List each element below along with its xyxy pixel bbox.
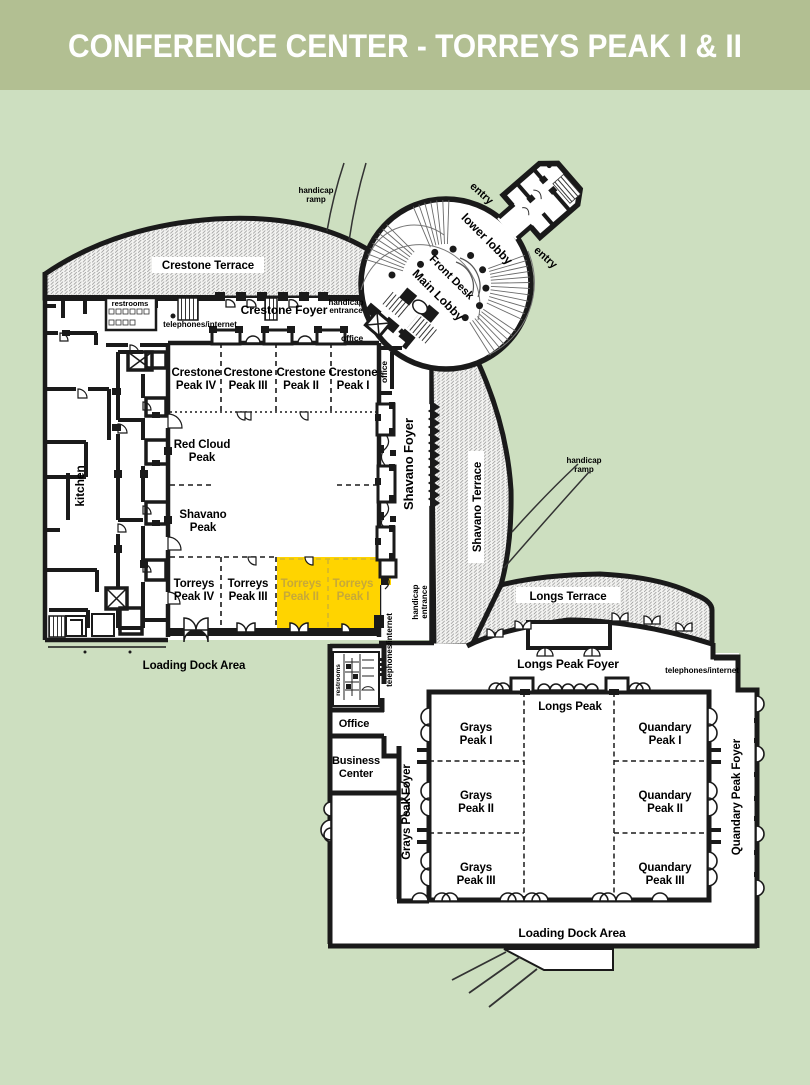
svg-text:handicap: handicap xyxy=(411,584,420,619)
svg-text:Longs Peak: Longs Peak xyxy=(538,701,602,713)
svg-text:Peak II: Peak II xyxy=(283,380,319,392)
svg-text:Peak I: Peak I xyxy=(337,380,370,392)
svg-text:Red Cloud: Red Cloud xyxy=(174,439,231,451)
svg-text:Crestone: Crestone xyxy=(328,367,377,379)
svg-text:Peak II: Peak II xyxy=(647,803,683,815)
svg-text:Loading Dock Area: Loading Dock Area xyxy=(518,926,626,940)
svg-text:Peak I: Peak I xyxy=(460,735,493,747)
svg-text:Longs Terrace: Longs Terrace xyxy=(529,591,606,603)
svg-text:Shavano: Shavano xyxy=(179,509,226,521)
svg-text:Peak IV: Peak IV xyxy=(176,380,217,392)
svg-text:Quandary: Quandary xyxy=(639,790,693,802)
svg-text:Crestone Foyer: Crestone Foyer xyxy=(241,303,328,317)
svg-text:Quandary: Quandary xyxy=(639,862,693,874)
svg-text:handicap: handicap xyxy=(298,186,333,195)
svg-text:Center: Center xyxy=(339,768,374,780)
svg-text:Peak I: Peak I xyxy=(337,591,370,603)
svg-text:telephones/internet: telephones/internet xyxy=(665,666,739,675)
svg-text:entrance: entrance xyxy=(420,585,429,619)
svg-text:Grays: Grays xyxy=(460,722,492,734)
svg-text:Torreys: Torreys xyxy=(281,578,322,590)
svg-text:Peak III: Peak III xyxy=(457,875,496,887)
svg-text:Peak II: Peak II xyxy=(458,803,494,815)
svg-text:Quandary Peak Foyer: Quandary Peak Foyer xyxy=(731,738,743,855)
svg-text:restrooms: restrooms xyxy=(112,299,149,308)
svg-text:Crestone: Crestone xyxy=(223,367,272,379)
svg-text:handicap: handicap xyxy=(566,456,601,465)
svg-text:Peak: Peak xyxy=(189,452,216,464)
svg-text:Torreys: Torreys xyxy=(228,578,269,590)
svg-text:Business: Business xyxy=(332,755,380,767)
svg-text:telephones/internet: telephones/internet xyxy=(163,320,237,329)
svg-text:Crestone: Crestone xyxy=(171,367,220,379)
svg-text:Loading Dock Area: Loading Dock Area xyxy=(143,660,246,672)
svg-text:office: office xyxy=(341,333,363,343)
svg-text:Torreys: Torreys xyxy=(333,578,374,590)
svg-text:Peak III: Peak III xyxy=(646,875,685,887)
svg-text:restrooms: restrooms xyxy=(335,664,342,696)
svg-text:Office: Office xyxy=(339,718,370,730)
svg-text:Peak I: Peak I xyxy=(649,735,682,747)
svg-text:kitchen: kitchen xyxy=(73,465,87,506)
svg-text:ramp: ramp xyxy=(574,465,594,474)
svg-text:ramp: ramp xyxy=(306,195,326,204)
svg-text:office: office xyxy=(379,361,389,383)
svg-text:Longs Peak Foyer: Longs Peak Foyer xyxy=(517,657,619,671)
svg-text:Grays Peak Foyer: Grays Peak Foyer xyxy=(401,764,413,860)
svg-text:Crestone Terrace: Crestone Terrace xyxy=(162,260,254,272)
svg-text:Peak: Peak xyxy=(190,522,217,534)
svg-text:Peak IV: Peak IV xyxy=(174,591,215,603)
svg-text:Shavano Terrace: Shavano Terrace xyxy=(472,462,484,552)
svg-text:Quandary: Quandary xyxy=(639,722,693,734)
svg-text:Peak III: Peak III xyxy=(229,380,268,392)
svg-text:Peak II: Peak II xyxy=(283,591,319,603)
svg-text:Peak III: Peak III xyxy=(229,591,268,603)
svg-text:Grays: Grays xyxy=(460,862,492,874)
svg-text:Crestone: Crestone xyxy=(276,367,325,379)
svg-text:entrance: entrance xyxy=(329,306,363,315)
svg-text:Shavano Foyer: Shavano Foyer xyxy=(401,418,416,510)
svg-text:Grays: Grays xyxy=(460,790,492,802)
svg-text:CONFERENCE CENTER - TORREYS PE: CONFERENCE CENTER - TORREYS PEAK I & II xyxy=(68,28,742,64)
svg-text:telephones/internet: telephones/internet xyxy=(385,613,394,687)
svg-text:Torreys: Torreys xyxy=(174,578,215,590)
